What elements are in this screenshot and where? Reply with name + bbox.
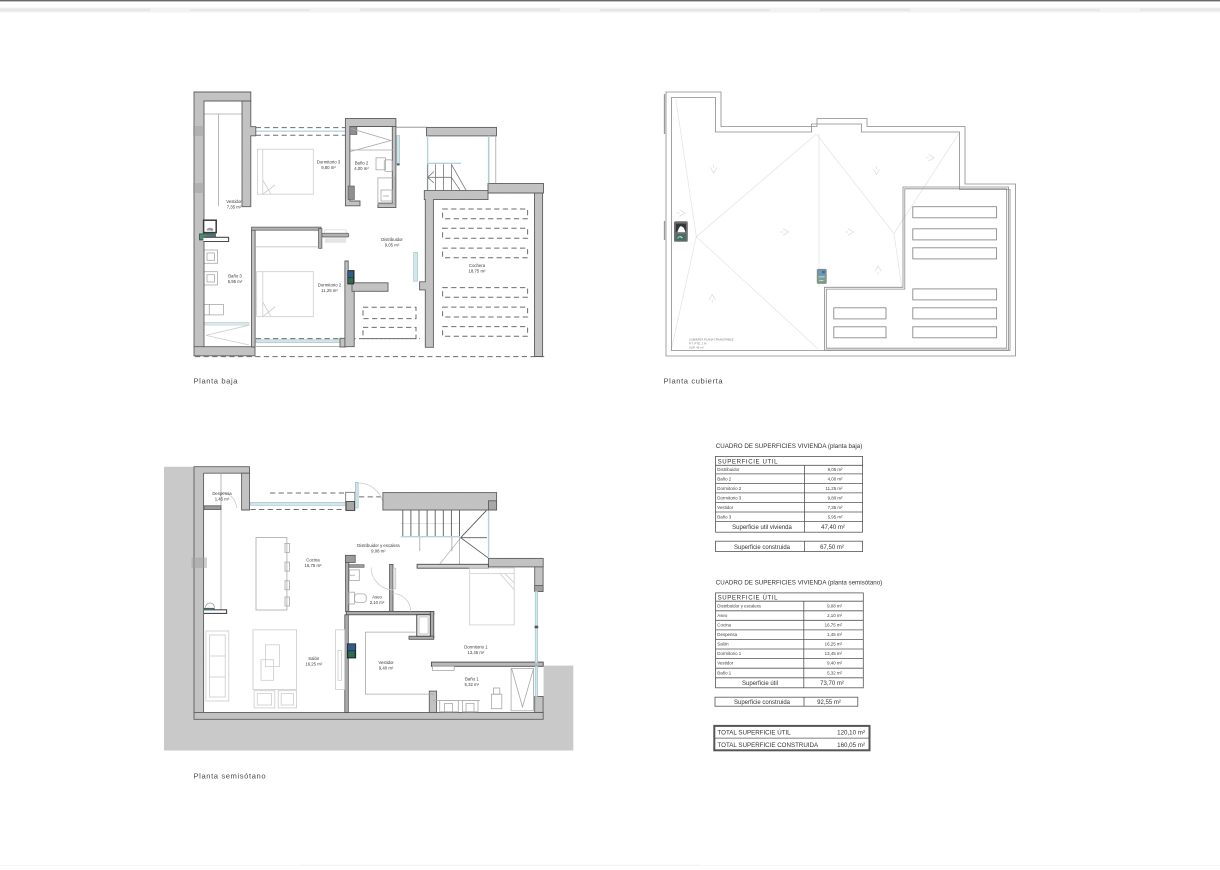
svg-text:Distribuidor y escalera: Distribuidor y escalera <box>717 603 761 608</box>
svg-text:Vestidor: Vestidor <box>717 661 733 666</box>
svg-text:Planta baja: Planta baja <box>194 377 239 386</box>
svg-text:92,55 m²: 92,55 m² <box>817 700 841 706</box>
svg-text:16,25 m²: 16,25 m² <box>305 662 323 667</box>
svg-text:Planta cubierta: Planta cubierta <box>664 377 724 386</box>
svg-text:Despensa: Despensa <box>717 632 737 637</box>
svg-text:TOTAL SUPERFICIE ÚTIL: TOTAL SUPERFICIE ÚTIL <box>718 730 792 737</box>
svg-text:Salón: Salón <box>308 656 320 661</box>
svg-text:11,25 m²: 11,25 m² <box>321 288 338 293</box>
svg-text:SUP. 45 m²: SUP. 45 m² <box>689 346 704 350</box>
svg-text:Superficie util vivienda: Superficie util vivienda <box>732 525 792 531</box>
svg-text:CUADRO DE SUPERFICIES VIVIENDA: CUADRO DE SUPERFICIES VIVIENDA (planta b… <box>716 443 862 450</box>
svg-text:Cochera: Cochera <box>469 263 486 268</box>
svg-text:2,10 m²: 2,10 m² <box>370 600 385 605</box>
svg-text:Aseo: Aseo <box>372 595 382 600</box>
svg-text:1,45 m²: 1,45 m² <box>827 632 842 637</box>
svg-text:9,40 m²: 9,40 m² <box>379 666 394 671</box>
svg-text:Cocina: Cocina <box>306 558 320 563</box>
svg-text:Baño 1: Baño 1 <box>465 677 479 682</box>
svg-text:Distribuidor: Distribuidor <box>717 467 740 472</box>
svg-text:16,25 m²: 16,25 m² <box>825 642 843 647</box>
svg-text:67,50 m²: 67,50 m² <box>820 545 844 551</box>
svg-text:16,75 m²: 16,75 m² <box>825 622 843 627</box>
svg-text:5,95 m²: 5,95 m² <box>228 279 243 284</box>
svg-text:SUPERFICIE UTIL: SUPERFICIE UTIL <box>718 458 778 465</box>
svg-text:120,10 m²: 120,10 m² <box>837 730 865 737</box>
svg-text:Planta semisótano: Planta semisótano <box>194 772 267 781</box>
svg-text:13,45 m²: 13,45 m² <box>825 651 843 656</box>
svg-text:Superficie útil: Superficie útil <box>742 681 778 687</box>
svg-text:5,95 m²: 5,95 m² <box>828 515 843 520</box>
svg-text:9,05 m²: 9,05 m² <box>828 467 843 472</box>
svg-text:Superficie construida: Superficie construida <box>734 545 791 551</box>
svg-text:Salón: Salón <box>717 642 729 647</box>
svg-text:47,40 m²: 47,40 m² <box>821 525 845 531</box>
svg-text:4,00 m²: 4,00 m² <box>828 477 843 482</box>
svg-text:Vestidor: Vestidor <box>226 199 242 204</box>
svg-text:7,35 m²: 7,35 m² <box>828 505 843 510</box>
svg-text:11,25 m²: 11,25 m² <box>825 486 843 491</box>
svg-text:9,05 m²: 9,05 m² <box>385 243 400 248</box>
svg-text:Dormitorio 1: Dormitorio 1 <box>717 651 741 656</box>
svg-text:SUPERFICIE ÚTIL: SUPERFICIE ÚTIL <box>718 595 778 602</box>
svg-text:1,45 m²: 1,45 m² <box>215 497 230 502</box>
svg-text:9,40 m²: 9,40 m² <box>827 661 842 666</box>
svg-text:Distribuidor: Distribuidor <box>381 237 403 242</box>
svg-text:7,35 m²: 7,35 m² <box>227 205 242 210</box>
svg-text:Baño 3: Baño 3 <box>228 274 242 279</box>
svg-text:CUADRO DE SUPERFICIES VIVIENDA: CUADRO DE SUPERFICIES VIVIENDA (planta s… <box>716 580 882 587</box>
svg-text:Superficie construida: Superficie construida <box>734 700 791 706</box>
svg-text:16,75 m²: 16,75 m² <box>305 563 323 568</box>
svg-text:Dormitorio 2: Dormitorio 2 <box>717 486 741 491</box>
svg-text:73,70 m²: 73,70 m² <box>820 681 844 687</box>
svg-text:Dormitorio 3: Dormitorio 3 <box>317 160 341 165</box>
svg-text:4,00 m²: 4,00 m² <box>354 166 369 171</box>
svg-text:13,45 m²: 13,45 m² <box>467 650 485 655</box>
svg-text:Baño 2: Baño 2 <box>355 161 369 166</box>
svg-text:Vestidor: Vestidor <box>378 660 394 665</box>
svg-text:Baño 2: Baño 2 <box>717 477 731 482</box>
svg-text:Cocina: Cocina <box>717 622 731 627</box>
svg-text:Dormitorio 2: Dormitorio 2 <box>318 283 342 288</box>
svg-text:2,10 m²: 2,10 m² <box>827 613 842 618</box>
svg-text:5,32 m²: 5,32 m² <box>827 670 842 675</box>
svg-text:Distribuidor y escalera: Distribuidor y escalera <box>357 543 400 548</box>
svg-text:Dormitorio 3: Dormitorio 3 <box>717 496 741 501</box>
svg-text:Baño 1: Baño 1 <box>717 670 731 675</box>
svg-text:9,08 m²: 9,08 m² <box>827 603 842 608</box>
svg-text:Despensa: Despensa <box>212 491 232 496</box>
svg-text:9,80 m²: 9,80 m² <box>321 165 336 170</box>
svg-text:Dormitorio 1: Dormitorio 1 <box>464 645 488 650</box>
svg-text:Baño 3: Baño 3 <box>717 515 731 520</box>
svg-text:5,32 m²: 5,32 m² <box>465 682 480 687</box>
svg-text:9,80 m²: 9,80 m² <box>828 496 843 501</box>
svg-text:Vestidor: Vestidor <box>717 505 733 510</box>
svg-text:9,08 m²: 9,08 m² <box>371 549 386 554</box>
svg-text:Aseo: Aseo <box>717 613 728 618</box>
svg-text:160,05 m²: 160,05 m² <box>837 742 865 749</box>
svg-text:18,75 m²: 18,75 m² <box>469 269 487 274</box>
svg-text:TOTAL SUPERFICIE CONSTRUIDA: TOTAL SUPERFICIE CONSTRUIDA <box>718 742 819 749</box>
